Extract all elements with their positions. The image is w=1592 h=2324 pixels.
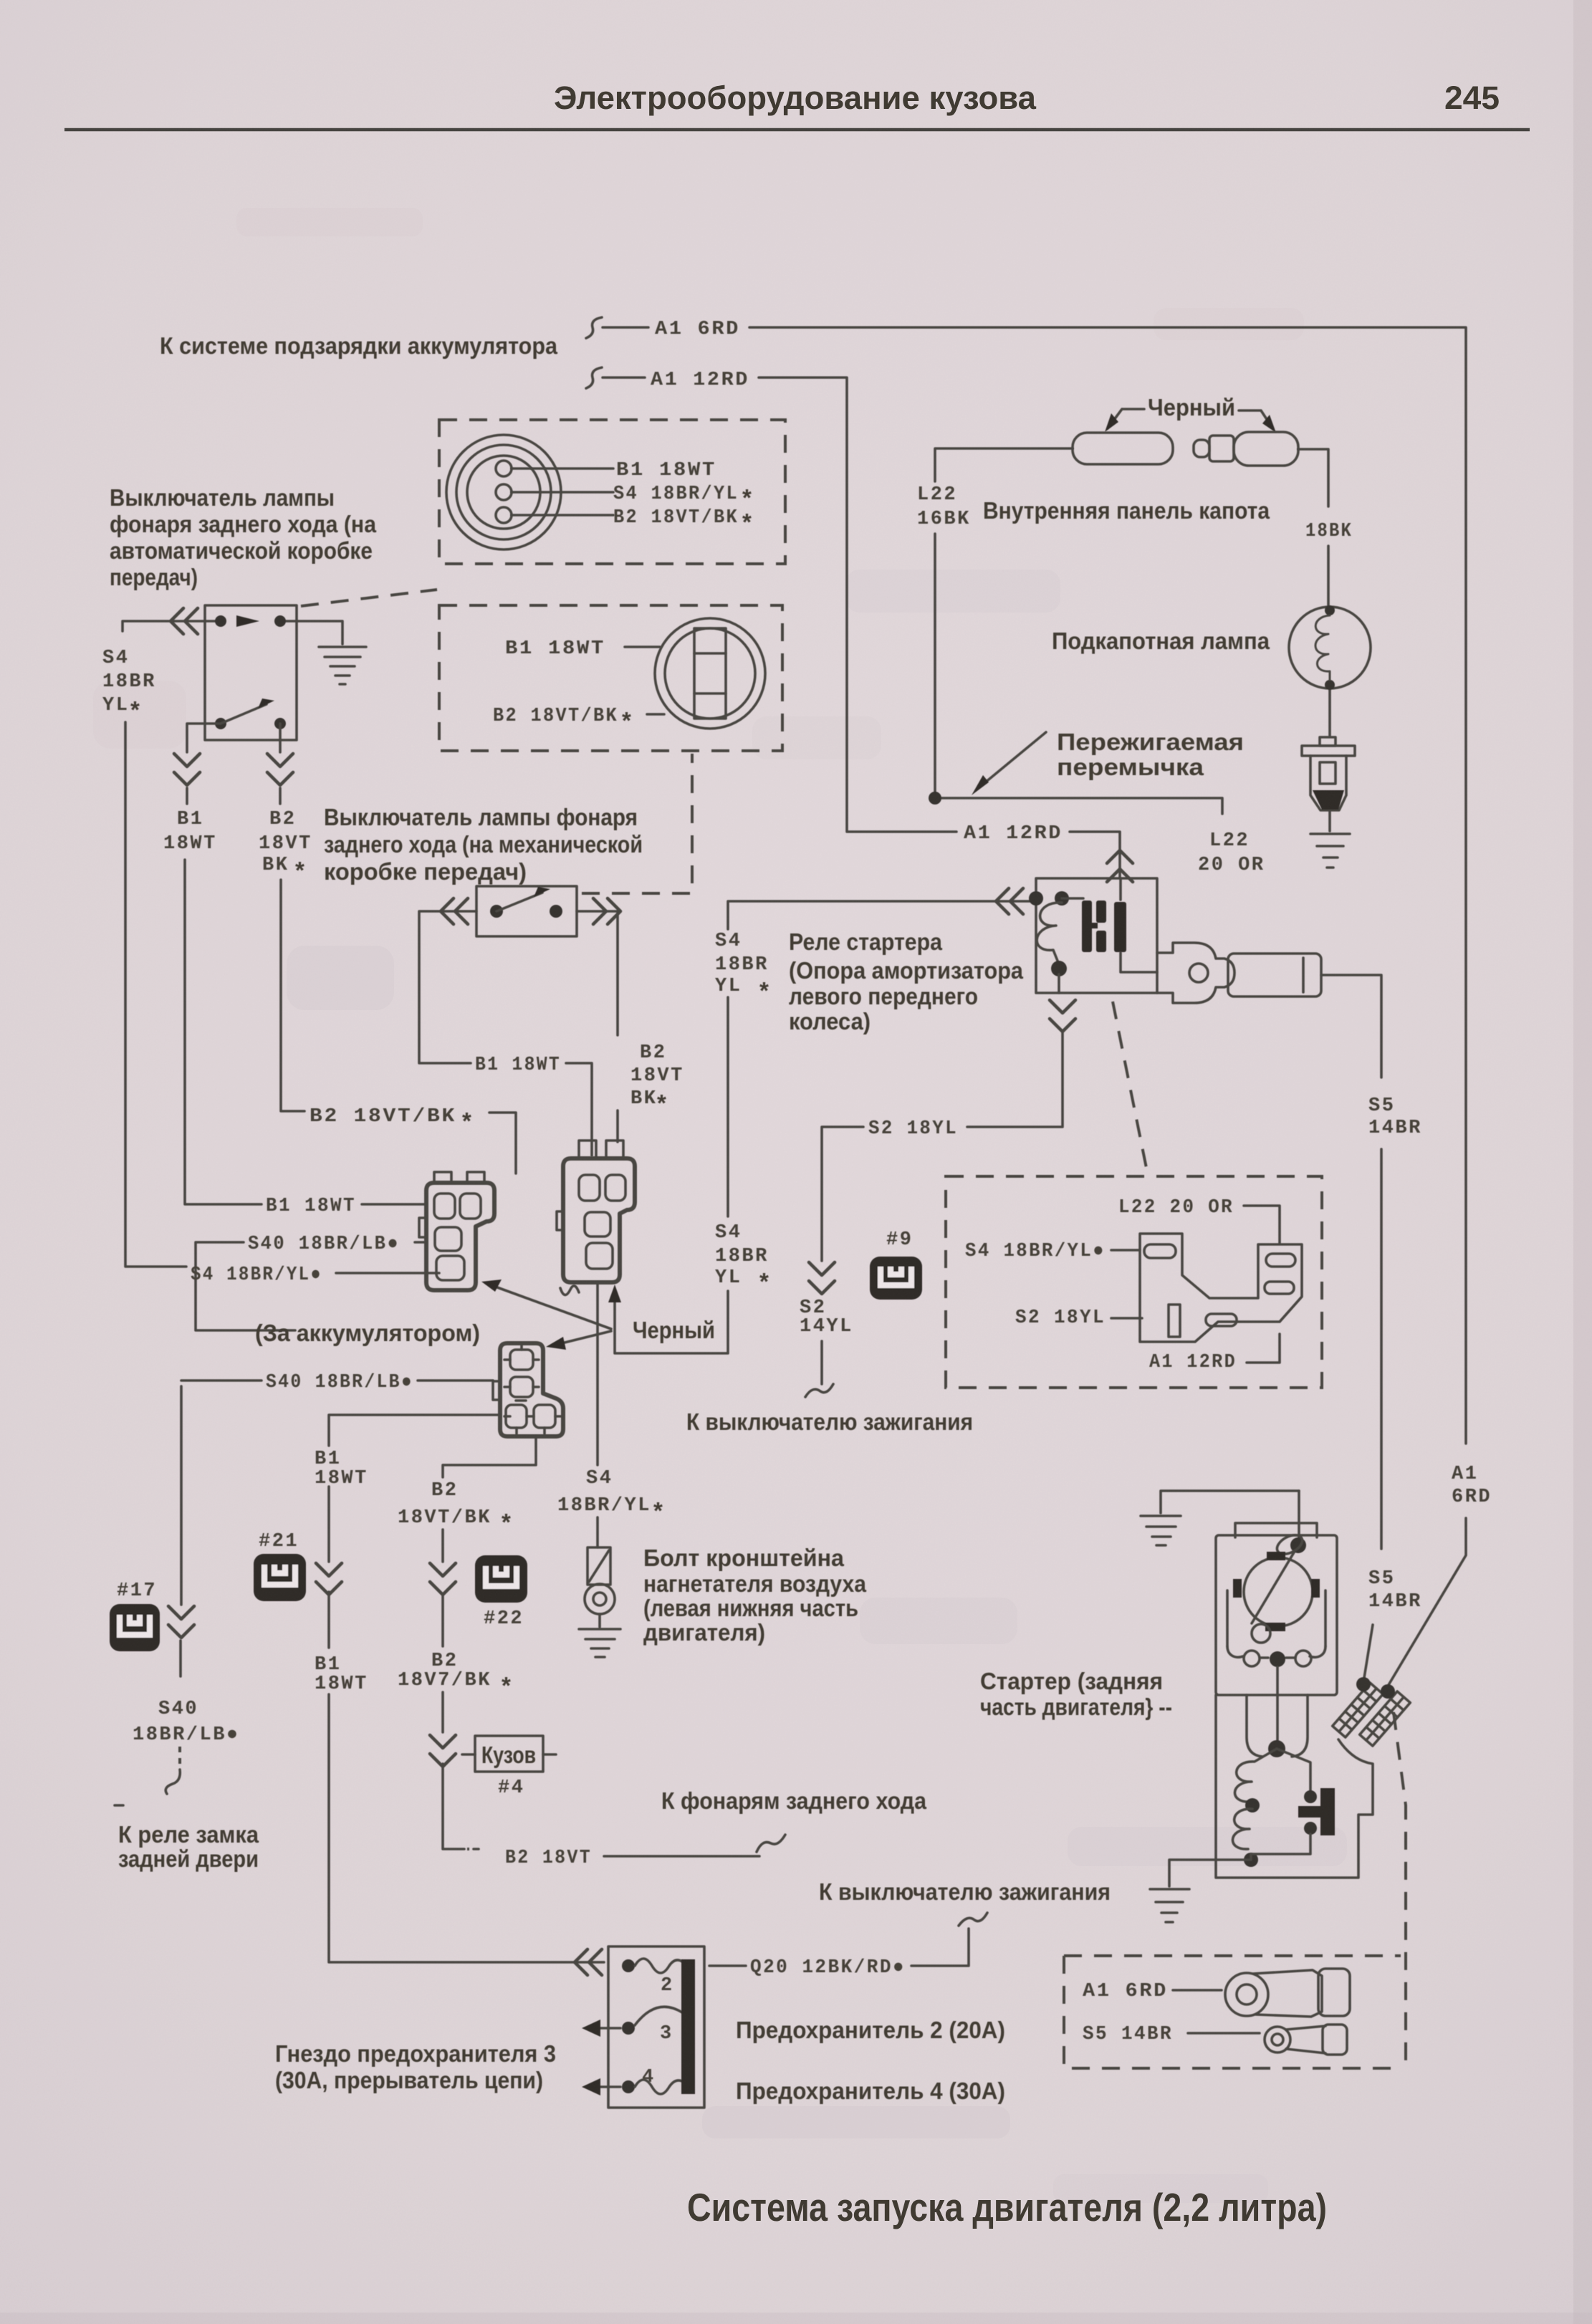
svg-text:(За аккумулятором): (За аккумулятором) — [255, 1320, 480, 1346]
svg-text:заднего хода (на механической: заднего хода (на механической — [324, 831, 643, 858]
svg-text:B2: B2 — [640, 1042, 666, 1064]
svg-text:A1 6RD: A1 6RD — [1083, 1981, 1168, 2002]
svg-text:14BR: 14BR — [1368, 1118, 1422, 1139]
svg-text:245: 245 — [1444, 80, 1500, 116]
svg-text:18BR/YL: 18BR/YL — [557, 1495, 651, 1517]
svg-text:B1: B1 — [177, 809, 203, 830]
svg-text:К реле замка: К реле замка — [118, 1821, 259, 1848]
svg-text:A1 12RD: A1 12RD — [651, 370, 749, 391]
svg-text:2: 2 — [661, 1975, 674, 1997]
svg-text:18VT: 18VT — [630, 1065, 684, 1087]
svg-text:L22: L22 — [917, 484, 957, 506]
svg-text:К выключателю зажигания: К выключателю зажигания — [819, 1878, 1111, 1905]
svg-text:18V7/BK: 18V7/BK — [398, 1670, 491, 1691]
svg-text:Предохранитель 2 (20А): Предохранитель 2 (20А) — [736, 2017, 1005, 2043]
svg-text:18BR/LB●: 18BR/LB● — [133, 1724, 240, 1746]
svg-text:S40 18BR/LB●: S40 18BR/LB● — [266, 1372, 413, 1393]
svg-text:S2 18YL: S2 18YL — [868, 1118, 958, 1140]
svg-text:часть двигателя} --: часть двигателя} -- — [980, 1694, 1172, 1720]
svg-text:B1 18WT: B1 18WT — [505, 638, 605, 660]
svg-text:нагнетателя воздуха: нагнетателя воздуха — [643, 1570, 867, 1597]
svg-text:B2 18VT/BK: B2 18VT/BK — [493, 706, 618, 727]
svg-text:18WT: 18WT — [315, 1468, 368, 1489]
svg-text:фонаря заднего хода (на: фонаря заднего хода (на — [110, 511, 377, 537]
svg-text:B1: B1 — [315, 1449, 341, 1470]
svg-text:колеса): колеса) — [789, 1008, 871, 1034]
svg-text:*: * — [653, 1497, 663, 1524]
svg-text:A1 12RD: A1 12RD — [964, 823, 1063, 845]
svg-text:Внутренняя панель капота: Внутренняя панель капота — [983, 497, 1270, 524]
svg-text:*: * — [742, 484, 752, 511]
svg-text:4: 4 — [642, 2067, 656, 2088]
svg-text:18VT: 18VT — [259, 833, 312, 855]
svg-text:#22: #22 — [484, 1608, 524, 1630]
svg-text:18BR: 18BR — [102, 671, 156, 693]
svg-text:#9: #9 — [886, 1229, 913, 1251]
svg-text:коробке передач): коробке передач) — [324, 858, 527, 885]
svg-text:Электрооборудование кузова: Электрооборудование кузова — [554, 80, 1037, 116]
svg-text:14YL: 14YL — [800, 1316, 853, 1338]
svg-text:К фонарям заднего хода: К фонарям заднего хода — [661, 1787, 927, 1814]
svg-text:18WT: 18WT — [315, 1674, 368, 1695]
svg-text:автоматической коробке: автоматической коробке — [110, 537, 373, 564]
svg-text:B2 18VT/BK: B2 18VT/BK — [613, 507, 739, 529]
svg-text:B1 18WT: B1 18WT — [616, 460, 716, 481]
svg-text:К выключателю зажигания: К выключателю зажигания — [686, 1408, 973, 1435]
svg-text:(левая нижняя часть: (левая нижняя часть — [643, 1595, 858, 1621]
svg-text:B2: B2 — [431, 1480, 458, 1502]
svg-text:К системе подзарядки аккумулят: К системе подзарядки аккумулятора — [160, 332, 558, 359]
svg-text:16BK: 16BK — [917, 509, 971, 530]
svg-text:#17: #17 — [117, 1580, 157, 1602]
svg-text:B2: B2 — [269, 809, 296, 830]
svg-text:*: * — [759, 977, 769, 1004]
svg-text:*: * — [295, 857, 305, 883]
svg-text:передач): передач) — [110, 564, 198, 590]
svg-text:A1 12RD: A1 12RD — [1149, 1352, 1237, 1373]
svg-text:Выключатель лампы: Выключатель лампы — [110, 484, 335, 511]
svg-text:Стартер (задняя: Стартер (задняя — [980, 1668, 1163, 1694]
svg-text:20 OR: 20 OR — [1198, 855, 1265, 876]
svg-text:S2 18YL: S2 18YL — [1015, 1307, 1106, 1329]
svg-text:S5 14BR: S5 14BR — [1083, 2024, 1173, 2045]
svg-text:Гнездо предохранителя 3: Гнездо предохранителя 3 — [275, 2040, 556, 2067]
svg-text:перемычка: перемычка — [1057, 754, 1204, 780]
svg-text:Черный: Черный — [1148, 394, 1235, 421]
svg-text:B1 18WT: B1 18WT — [475, 1055, 561, 1076]
svg-text:Подкапотная лампа: Подкапотная лампа — [1052, 628, 1270, 654]
svg-text:*: * — [622, 707, 631, 734]
svg-text:BK: BK — [630, 1088, 657, 1110]
svg-text:S5: S5 — [1368, 1095, 1395, 1117]
svg-text:S4 18BR/YL: S4 18BR/YL — [613, 484, 739, 505]
svg-text:S4: S4 — [586, 1468, 613, 1489]
svg-text:задней двери: задней двери — [118, 1845, 259, 1872]
svg-text:S4 18BR/YL●: S4 18BR/YL● — [191, 1264, 322, 1286]
svg-text:Пережигаемая: Пережигаемая — [1057, 729, 1244, 755]
svg-text:YL: YL — [715, 1267, 742, 1289]
svg-text:3: 3 — [660, 2023, 673, 2045]
svg-text:S4: S4 — [715, 931, 742, 952]
svg-text:6RD: 6RD — [1452, 1487, 1492, 1508]
svg-text:18VT/BK: 18VT/BK — [398, 1507, 491, 1529]
svg-text:L22: L22 — [1209, 830, 1250, 852]
svg-text:(30А, прерыватель цепи): (30А, прерыватель цепи) — [275, 2067, 543, 2093]
svg-text:L22 20 OR: L22 20 OR — [1118, 1197, 1234, 1219]
svg-text:S40: S40 — [158, 1699, 198, 1720]
svg-text:Выключатель лампы фонаря: Выключатель лампы фонаря — [324, 804, 638, 830]
svg-text:B1: B1 — [315, 1654, 341, 1676]
svg-text:Кузов: Кузов — [481, 1742, 536, 1768]
svg-text:Q20 12BK/RD●: Q20 12BK/RD● — [750, 1957, 906, 1979]
svg-text:Система запуска двигателя (2,2: Система запуска двигателя (2,2 литра) — [687, 2185, 1327, 2229]
svg-text:YL: YL — [102, 695, 129, 716]
svg-text:*: * — [502, 1509, 511, 1535]
svg-text:#21: #21 — [259, 1531, 299, 1552]
svg-text:B1 18WT: B1 18WT — [266, 1196, 356, 1217]
svg-text:S40 18BR/LB●: S40 18BR/LB● — [248, 1234, 400, 1255]
svg-text:Реле стартера: Реле стартера — [789, 928, 943, 955]
svg-text:14BR: 14BR — [1368, 1591, 1422, 1613]
svg-text:#4: #4 — [498, 1777, 524, 1799]
svg-text:B2 18VT/BK: B2 18VT/BK — [310, 1106, 456, 1128]
svg-text:A1 6RD: A1 6RD — [655, 319, 740, 340]
svg-text:*: * — [130, 696, 140, 723]
svg-text:*: * — [657, 1090, 666, 1116]
svg-text:левого переднего: левого переднего — [789, 983, 978, 1009]
svg-text:S5: S5 — [1368, 1568, 1395, 1590]
svg-text:YL: YL — [715, 976, 742, 997]
svg-text:Болт кронштейна: Болт кронштейна — [643, 1545, 845, 1571]
svg-text:18BR: 18BR — [715, 1246, 769, 1267]
svg-text:S4 18BR/YL●: S4 18BR/YL● — [965, 1241, 1106, 1262]
svg-text:*: * — [742, 509, 752, 535]
svg-text:18BK: 18BK — [1305, 521, 1353, 542]
svg-text:A1: A1 — [1452, 1464, 1478, 1485]
svg-text:(Опора амортизатора: (Опора амортизатора — [789, 957, 1024, 984]
svg-text:*: * — [462, 1108, 471, 1134]
svg-text:18WT: 18WT — [163, 833, 217, 855]
svg-text:двигателя): двигателя) — [643, 1619, 765, 1646]
svg-text:*: * — [502, 1672, 511, 1699]
svg-text:S4: S4 — [715, 1222, 742, 1244]
svg-text:Черный: Черный — [633, 1317, 715, 1343]
svg-text:*: * — [759, 1268, 769, 1295]
svg-text:18BR: 18BR — [715, 954, 769, 976]
svg-text:S4: S4 — [102, 648, 129, 669]
svg-text:BK: BK — [262, 855, 289, 876]
svg-text:B2 18VT: B2 18VT — [505, 1848, 592, 1869]
svg-text:Предохранитель 4 (30А): Предохранитель 4 (30А) — [736, 2078, 1005, 2104]
svg-text:B2: B2 — [431, 1651, 458, 1672]
